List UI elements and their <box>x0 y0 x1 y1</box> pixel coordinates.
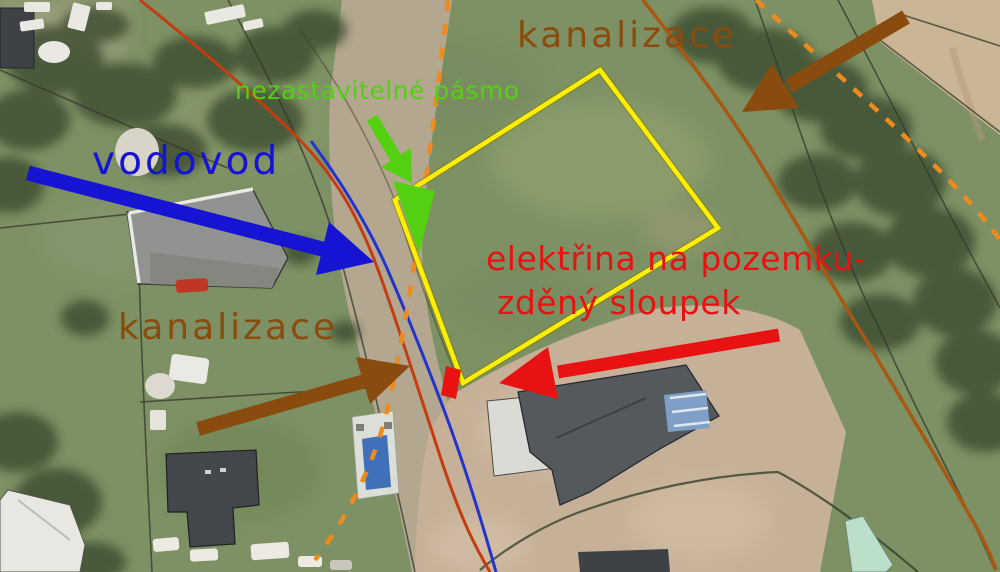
label-elektrina-line1: elektřina na pozemku- <box>486 242 866 275</box>
label-kanalizace-top: kanalizace <box>517 18 737 54</box>
annotated-aerial-map: kanalizace nezastavitelné pásmo vodovod … <box>0 0 1000 572</box>
label-elektrina-line2: zděný sloupek <box>497 286 741 319</box>
label-nezastavitelne-pasmo: nezastavitelné pásmo <box>235 78 520 103</box>
red-car <box>176 278 209 293</box>
label-kanalizace-left: kanalizace <box>118 310 338 346</box>
label-vodovod: vodovod <box>92 142 280 181</box>
swimming-pool <box>362 435 391 490</box>
